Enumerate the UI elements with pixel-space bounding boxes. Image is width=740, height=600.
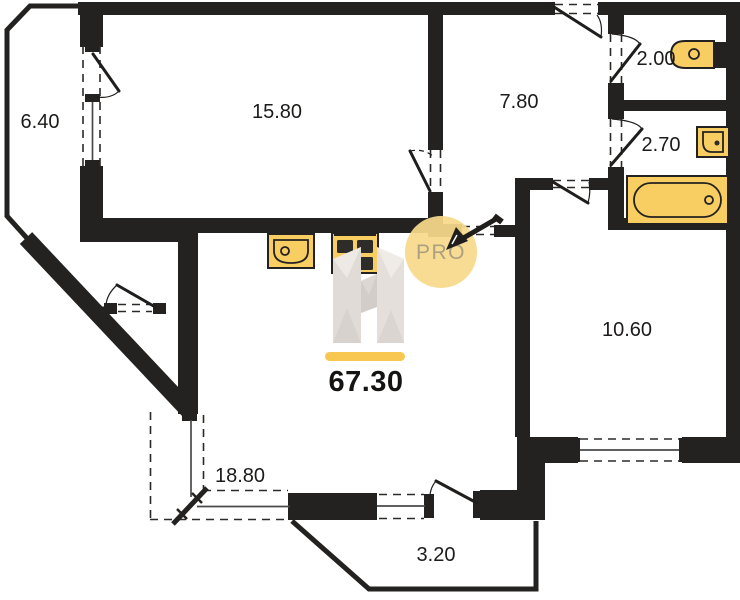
total-area-accent-bar xyxy=(325,352,405,361)
bathroom-area-label: 2.70 xyxy=(642,134,681,156)
room-right-area-label: 10.60 xyxy=(602,319,652,341)
floor-plan-canvas: PRO 67.30 6.40 15.80 7.80 2.00 2.70 10.6… xyxy=(0,0,740,600)
balcony-bottom-area-label: 3.20 xyxy=(417,544,456,566)
living-kitchen-area-label: 18.80 xyxy=(215,465,265,487)
bathtub-icon xyxy=(627,176,728,224)
total-area-label: 67.30 xyxy=(328,366,403,398)
wc-area-label: 2.00 xyxy=(637,48,676,70)
floor-plan: PRO 67.30 6.40 15.80 7.80 2.00 2.70 10.6… xyxy=(0,0,740,600)
kitchen-sink-icon xyxy=(268,230,314,268)
hallway-area-label: 7.80 xyxy=(500,91,539,113)
balcony-left-area-label: 6.40 xyxy=(21,111,60,133)
bedroom-area-label: 15.80 xyxy=(252,101,302,123)
toilet-icon xyxy=(671,41,726,68)
washbasin-icon xyxy=(697,127,729,157)
